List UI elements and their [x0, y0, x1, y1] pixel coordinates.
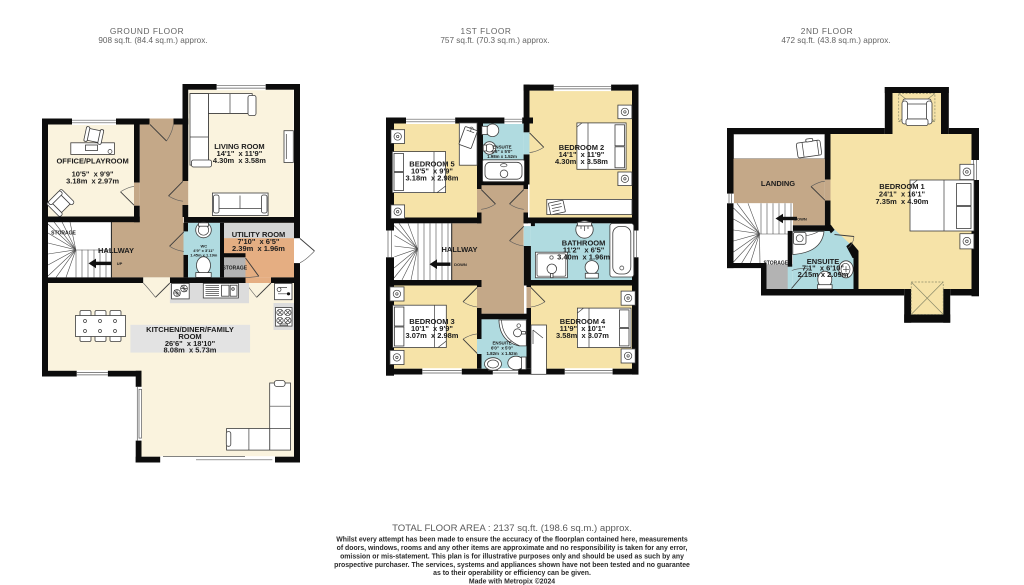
svg-text:757 sq.ft. (70.3 sq.m.) approx: 757 sq.ft. (70.3 sq.m.) approx. [440, 36, 549, 45]
svg-text:as to their operability or eff: as to their operability or efficiency ca… [433, 570, 591, 577]
svg-text:908 sq.ft. (84.4 sq.m.) approx: 908 sq.ft. (84.4 sq.m.) approx. [98, 36, 207, 45]
svg-text:3.07m x 2.98m: 3.07m x 2.98m [406, 331, 459, 340]
svg-text:STORAGE: STORAGE [222, 266, 247, 272]
svg-text:3.18m x 2.97m: 3.18m x 2.97m [66, 176, 119, 185]
svg-text:TOTAL FLOOR AREA : 2137 sq.ft.: TOTAL FLOOR AREA : 2137 sq.ft. (198.6 sq… [392, 523, 632, 534]
svg-text:OFFICE/PLAYROOM: OFFICE/PLAYROOM [56, 156, 128, 165]
svg-text:GROUND FLOOR: GROUND FLOOR [110, 26, 184, 36]
svg-text:omission or mis-statement. Thi: omission or mis-statement. This plan is … [340, 553, 684, 560]
svg-text:HALLWAY: HALLWAY [98, 246, 134, 255]
svg-text:Made with Metropix ©2024: Made with Metropix ©2024 [469, 578, 555, 585]
svg-text:6'0" x 5'0": 6'0" x 5'0" [491, 346, 513, 351]
svg-text:3.40m x 1.96m: 3.40m x 1.96m [557, 253, 610, 262]
svg-text:7.35m x 4.90m: 7.35m x 4.90m [876, 197, 929, 206]
svg-text:8.08m x 5.73m: 8.08m x 5.73m [164, 345, 217, 354]
svg-text:HALLWAY: HALLWAY [442, 245, 478, 254]
svg-text:1.82m x 1.52m: 1.82m x 1.52m [486, 351, 517, 356]
svg-text:2.39m x 1.96m: 2.39m x 1.96m [232, 244, 285, 253]
svg-text:2.15m x 2.09m: 2.15m x 2.09m [798, 270, 849, 279]
svg-text:STORAGE: STORAGE [51, 230, 76, 236]
svg-text:DOWN: DOWN [794, 216, 807, 221]
svg-text:1ST FLOOR: 1ST FLOOR [461, 26, 512, 36]
svg-text:472 sq.ft. (43.8 sq.m.) approx: 472 sq.ft. (43.8 sq.m.) approx. [781, 36, 890, 45]
svg-text:2ND FLOOR: 2ND FLOOR [801, 26, 853, 36]
svg-text:STORAGE: STORAGE [763, 260, 788, 266]
svg-text:1.45m x 1.19m: 1.45m x 1.19m [190, 252, 218, 257]
svg-text:4.30m x 3.58m: 4.30m x 3.58m [213, 156, 266, 165]
svg-text:1.98m x 1.52m: 1.98m x 1.52m [487, 154, 517, 159]
svg-text:of doors, windows, rooms and a: of doors, windows, rooms and any other i… [337, 545, 688, 552]
svg-text:DOWN: DOWN [454, 262, 467, 267]
svg-text:Whilst every attempt has been: Whilst every attempt has been made to en… [336, 537, 688, 544]
svg-text:3.58m x 3.07m: 3.58m x 3.07m [556, 331, 609, 340]
svg-text:LANDING: LANDING [761, 179, 795, 188]
svg-text:prospective purchaser. The ser: prospective purchaser. The services, sys… [334, 562, 690, 569]
svg-text:4.30m x 3.58m: 4.30m x 3.58m [555, 157, 608, 166]
svg-text:UP: UP [117, 261, 123, 266]
svg-text:3.18m x 2.98m: 3.18m x 2.98m [406, 173, 459, 182]
svg-text:ENSUITE: ENSUITE [492, 340, 511, 345]
